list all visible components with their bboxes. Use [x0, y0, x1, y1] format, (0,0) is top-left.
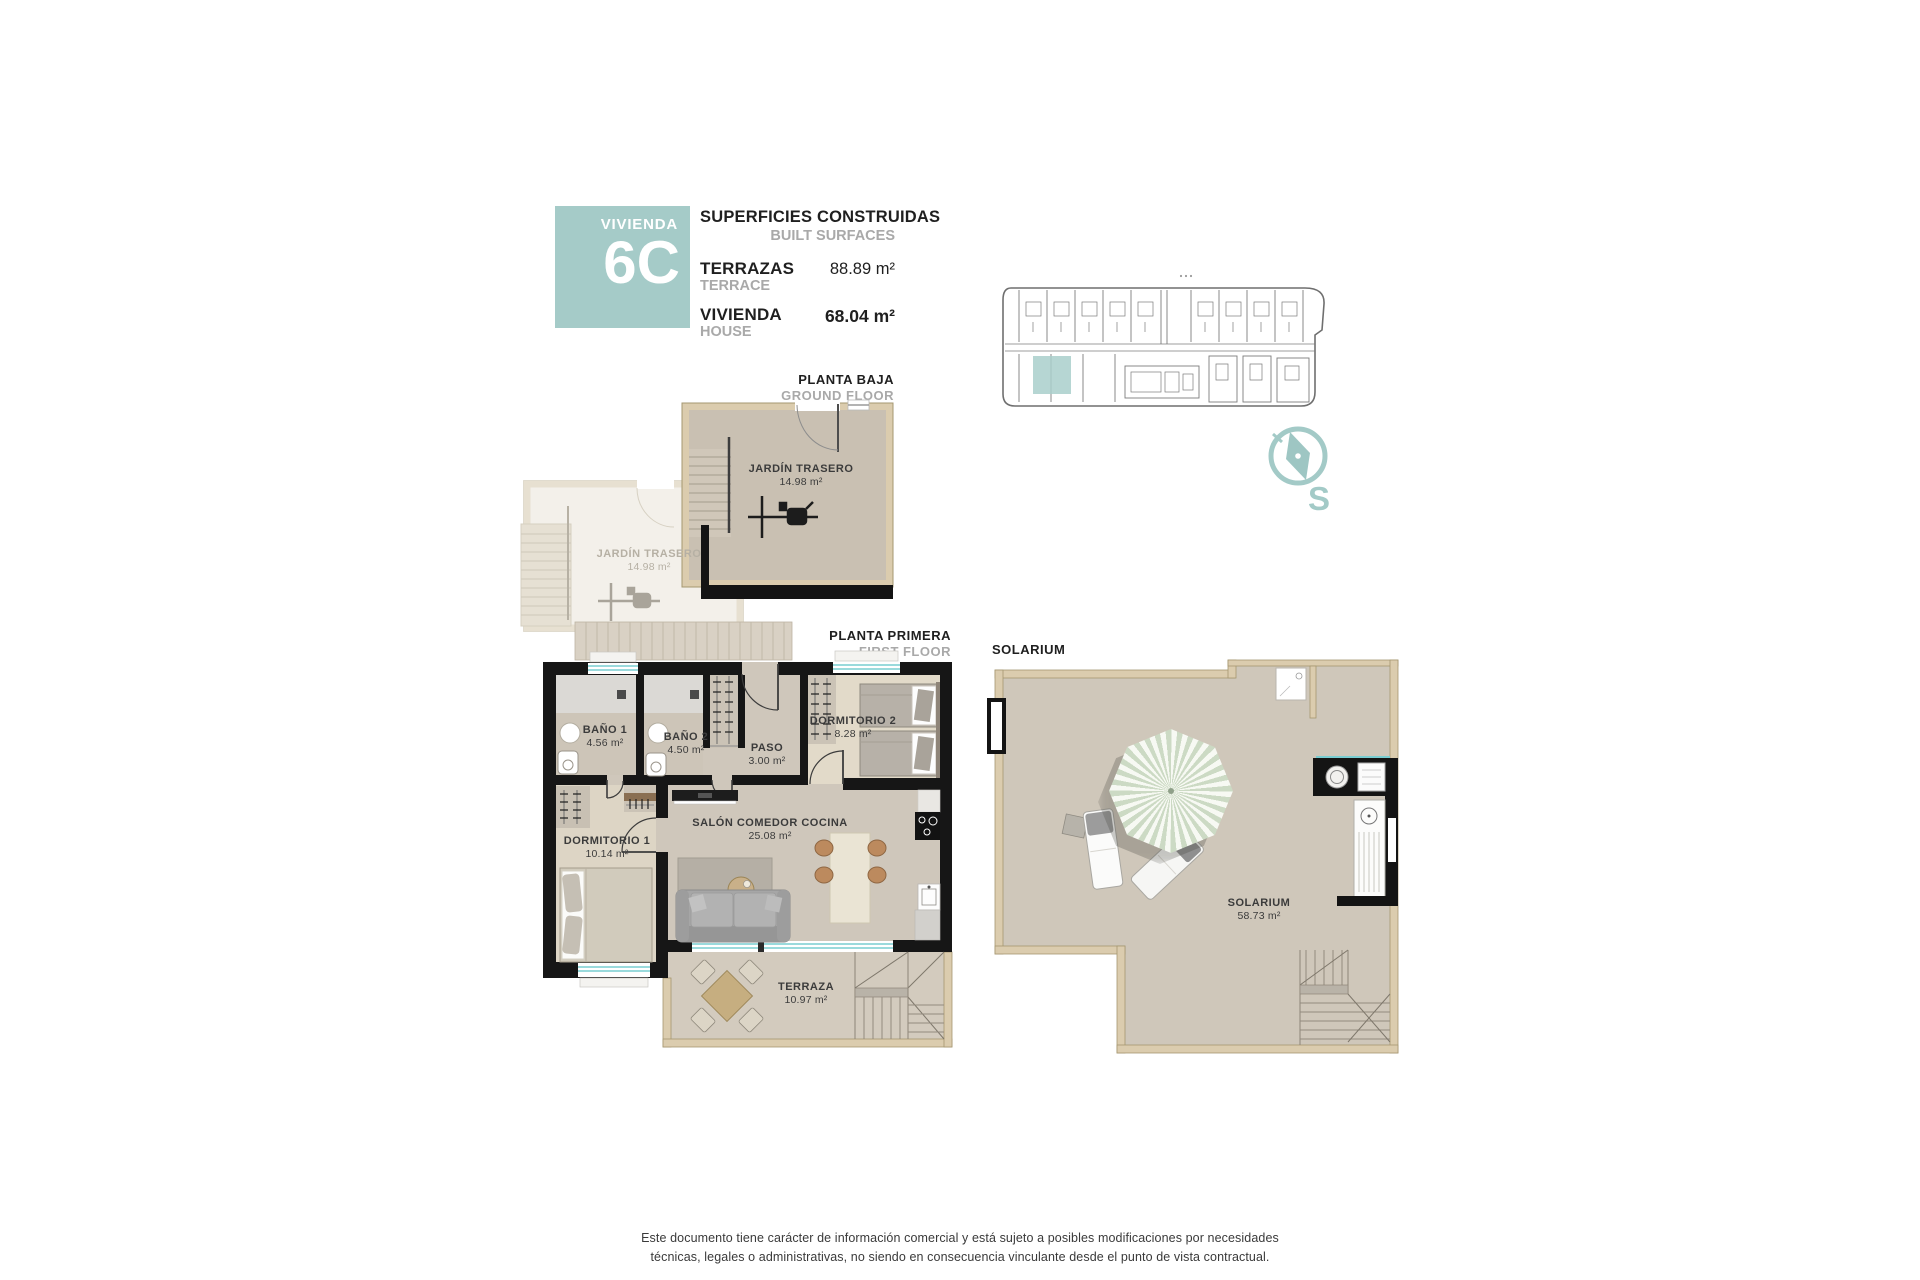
- compass-south-label: S: [1308, 480, 1330, 518]
- floor-plan-page: VIVIENDA 6C SUPERFICIES CONSTRUIDAS BUIL…: [0, 0, 1920, 1280]
- double-bed: [560, 868, 652, 962]
- surfaces-title-en: BUILT SURFACES: [700, 228, 895, 244]
- sofa: [676, 890, 790, 942]
- terraces-label-en: TERRACE: [700, 278, 895, 294]
- room-label-bedroom1: DORMITORIO 1 10.14 m²: [564, 835, 650, 860]
- room-label-bathroom1: BAÑO 1 4.56 m²: [583, 724, 628, 749]
- unit-garden: [682, 400, 893, 599]
- room-label-bedroom2: DORMITORIO 2 8.28 m²: [810, 715, 896, 740]
- garden-staircase: [689, 437, 731, 537]
- unit-badge-number: 6C: [603, 228, 680, 297]
- disclaimer: Este documento tiene carácter de informa…: [610, 1229, 1310, 1267]
- surfaces-panel: SUPERFICIES CONSTRUIDAS BUILT SURFACES T…: [700, 208, 895, 351]
- site-plan: [995, 266, 1347, 418]
- disclaimer-line2: técnicas, legales o administrativas, no …: [610, 1248, 1310, 1267]
- neighbor-staircase: [521, 506, 571, 626]
- surfaces-title-es: SUPERFICIES CONSTRUIDAS: [700, 208, 895, 227]
- surface-row-terraces: TERRAZAS TERRACE 88.89 m²: [700, 259, 895, 294]
- site-plan-highlighted-unit: [1033, 356, 1071, 394]
- room-label-living-room: SALÓN COMEDOR COCINA 25.08 m²: [692, 817, 847, 842]
- parasol: [1109, 729, 1233, 853]
- house-value: 68.04 m²: [825, 306, 895, 327]
- room-label-garden-neighbor: JARDÍN TRASERO 14.98 m²: [597, 548, 702, 573]
- room-label-bathroom2: BAÑO 2 4.50 m²: [664, 731, 709, 756]
- room-label-terrace: TERRAZA 10.97 m²: [778, 981, 834, 1006]
- wall-opening: [989, 700, 1004, 752]
- surface-row-house: VIVIENDA HOUSE 68.04 m²: [700, 305, 895, 340]
- terraces-value: 88.89 m²: [830, 260, 895, 279]
- room-label-hall: PASO 3.00 m²: [749, 742, 786, 767]
- room-label-solarium: SOLARIUM 58.73 m²: [1228, 897, 1291, 922]
- disclaimer-line1: Este documento tiene carácter de informa…: [610, 1229, 1310, 1248]
- room-label-garden: JARDÍN TRASERO 14.98 m²: [749, 463, 854, 488]
- unit-badge: VIVIENDA 6C: [555, 206, 690, 328]
- outdoor-dining-set: [690, 959, 763, 1032]
- compass: S: [1264, 422, 1354, 526]
- tv-console: [672, 790, 738, 804]
